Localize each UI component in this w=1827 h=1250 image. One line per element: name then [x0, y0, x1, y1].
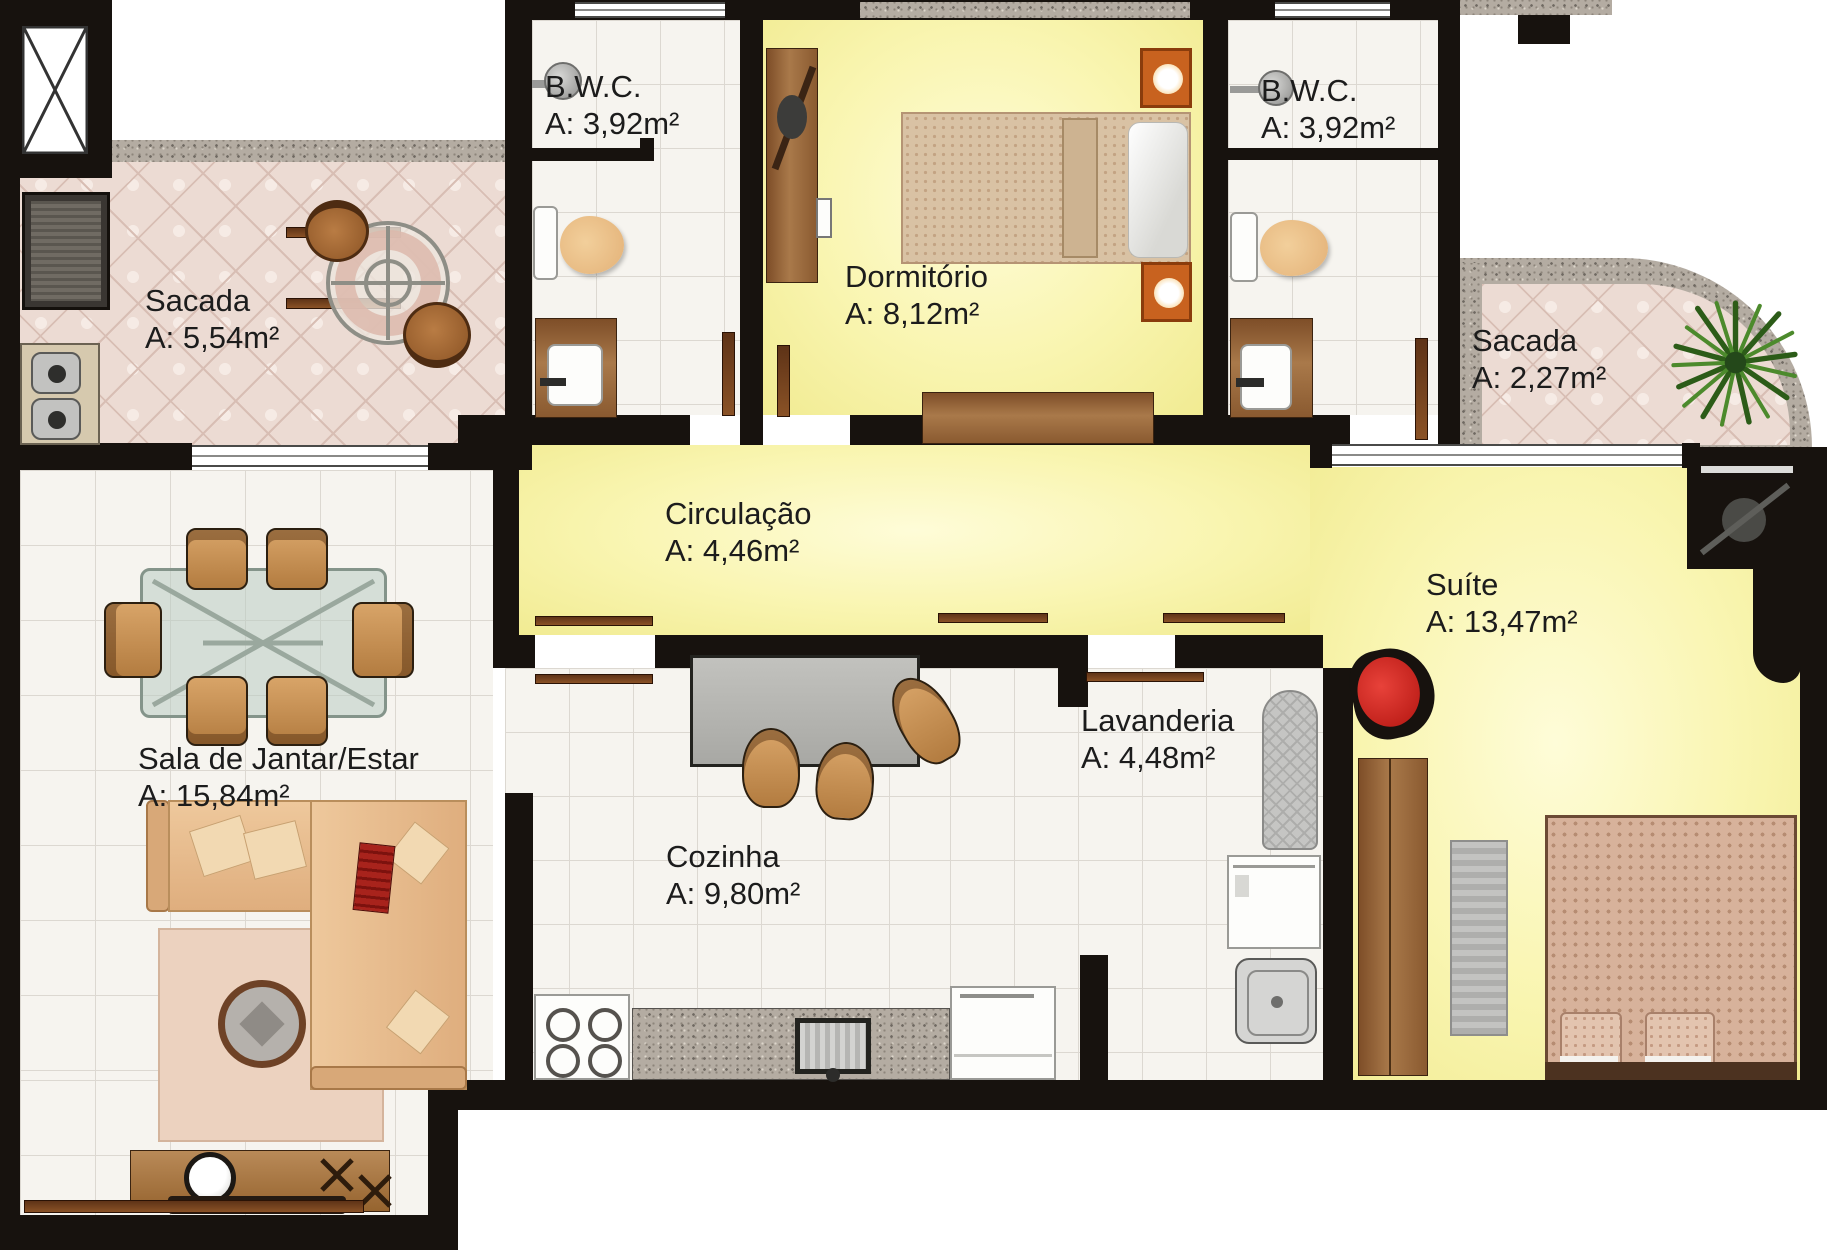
- wall-hall-bottom-c: [1175, 635, 1323, 668]
- room-name: Lavanderia: [1081, 702, 1234, 739]
- nightstand-lamp: [1140, 48, 1192, 108]
- room-label-dormitorio: Dormitório A: 8,12m²: [845, 258, 988, 332]
- rack-decor-x: [320, 1158, 354, 1192]
- wall-hall-bottom-a: [493, 635, 535, 668]
- barbecue-grill: [22, 192, 110, 310]
- room-name: Cozinha: [666, 838, 800, 875]
- suite-rug: [1450, 840, 1508, 1036]
- room-label-bwc-2: B.W.C. A: 3,92m²: [1261, 72, 1395, 146]
- washing-machine: [1227, 855, 1321, 949]
- living-balcony-window: [192, 445, 428, 467]
- bedroom-wardrobe: [766, 48, 818, 283]
- ironing-board: [1262, 690, 1318, 850]
- wall-laundry-stub: [1058, 635, 1088, 707]
- wall-balcony1-bottom-left: [0, 443, 192, 470]
- bedroom-pillow: [1128, 122, 1188, 258]
- floorplan-canvas: Sacada A: 5,54m² B.W.C. A: 3,92m² Dormit…: [0, 0, 1827, 1250]
- laundry-door-outer: [938, 613, 1048, 623]
- room-name: Suíte: [1426, 566, 1578, 603]
- room-label-sacada-2: Sacada A: 2,27m²: [1472, 322, 1606, 396]
- plant-icon: [1668, 295, 1803, 430]
- wall-living-left: [0, 470, 20, 1250]
- granite-top-right-strip: [1460, 0, 1612, 15]
- room-name: Circulação: [665, 495, 811, 532]
- shower-partition: [1228, 148, 1438, 160]
- room-area: A: 4,46m²: [665, 532, 811, 569]
- room-area: A: 13,47m²: [1426, 603, 1578, 640]
- wall-h-bwc2: [1228, 415, 1350, 445]
- kitchen-chair: [742, 728, 800, 808]
- wall-bottom-mid: [458, 1080, 1827, 1110]
- room-label-suite: Suíte A: 13,47m²: [1426, 566, 1578, 640]
- wall-suite-right: [1800, 569, 1827, 1110]
- room-area: A: 9,80m²: [666, 875, 800, 912]
- bwc2-window: [1275, 2, 1390, 18]
- elevator-shaft: [22, 26, 88, 154]
- balcony-sink-basin: [31, 352, 81, 394]
- stove: [534, 994, 630, 1080]
- room-area: A: 15,84m²: [138, 777, 419, 814]
- room-name: Sala de Jantar/Estar: [138, 740, 419, 777]
- bwc2-faucet: [1236, 378, 1264, 387]
- room-area: A: 3,92m²: [1261, 109, 1395, 146]
- toilet-tank: [1230, 212, 1258, 282]
- bwc1-window: [575, 2, 725, 18]
- fridge: [950, 986, 1056, 1080]
- balcony-sink-basin: [31, 398, 81, 440]
- wall-hall-left: [493, 445, 519, 635]
- room-name: B.W.C.: [545, 68, 679, 105]
- dining-chair: [352, 602, 414, 678]
- closet-shelf-line: [1701, 466, 1793, 473]
- wall-bwc2-right: [1438, 0, 1460, 445]
- suite-balcony-window: [1332, 444, 1682, 466]
- room-label-cozinha: Cozinha A: 9,80m²: [666, 838, 800, 912]
- wall-living-bottom: [0, 1215, 458, 1250]
- laundry-door-inner: [1086, 672, 1204, 682]
- dining-chair: [266, 528, 328, 590]
- suite-door: [1163, 613, 1285, 623]
- bedroom-door: [777, 345, 790, 417]
- nightstand-lamp: [1141, 262, 1192, 322]
- dining-table: [140, 568, 387, 718]
- room-area: A: 8,12m²: [845, 295, 988, 332]
- suite-closet-tongue: [1753, 569, 1801, 683]
- sofa-armrest: [146, 800, 170, 912]
- kitchen-table: [690, 655, 920, 767]
- suite-wardrobe: [1358, 758, 1428, 1076]
- dining-chair: [186, 676, 248, 746]
- room-area: A: 2,27m²: [1472, 359, 1606, 396]
- kitchen-counter: [632, 1008, 950, 1080]
- kitchen-door: [535, 674, 653, 684]
- wall-kitchen-laundry: [1080, 955, 1108, 1080]
- bwc1-faucet: [540, 378, 566, 386]
- kitchen-sink: [795, 1018, 871, 1074]
- room-area: A: 5,54m²: [145, 319, 279, 356]
- wall-top-right-stub: [1518, 14, 1570, 44]
- bwc2-sink: [1240, 344, 1292, 410]
- bedroom-shelf-items: [816, 198, 832, 238]
- balcony1-parapet: [112, 140, 505, 162]
- wall-bwc1-bedroom: [740, 0, 763, 445]
- suite-headboard: [1545, 1062, 1797, 1080]
- bedroom-dresser: [922, 392, 1154, 444]
- wall-kitchen-left: [505, 793, 533, 1080]
- laundry-tub: [1235, 958, 1317, 1044]
- wall-bedroom-bwc2: [1203, 0, 1228, 445]
- bedroom-window-sill: [860, 2, 1190, 18]
- shower-partition: [532, 148, 644, 161]
- room-label-sacada-1: Sacada A: 5,54m²: [145, 282, 279, 356]
- hallway-door: [535, 616, 653, 626]
- balcony-chair: [403, 302, 471, 368]
- sofa-armrest: [310, 1066, 467, 1090]
- room-name: Dormitório: [845, 258, 988, 295]
- toilet-tank: [533, 206, 558, 280]
- room-area: A: 3,92m²: [545, 105, 679, 142]
- room-name: B.W.C.: [1261, 72, 1395, 109]
- room-label-bwc-1: B.W.C. A: 3,92m²: [545, 68, 679, 142]
- room-name: Sacada: [1472, 322, 1606, 359]
- balcony-chair: [305, 200, 369, 262]
- bwc1-sink: [547, 344, 603, 406]
- dining-chair: [186, 528, 248, 590]
- wall-suite-window-left: [1310, 443, 1332, 468]
- wall-bwc1-left: [505, 0, 532, 470]
- room-label-lavanderia: Lavanderia A: 4,48m²: [1081, 702, 1234, 776]
- wall-h-stub: [740, 415, 763, 445]
- wall-balcony1-left: [0, 140, 20, 470]
- living-entry-door: [24, 1200, 364, 1213]
- room-area: A: 4,48m²: [1081, 739, 1234, 776]
- room-label-sala: Sala de Jantar/Estar A: 15,84m²: [138, 740, 419, 814]
- wall-h-bwc1: [458, 415, 690, 445]
- kitchen-faucet: [826, 1068, 840, 1082]
- sofa-red-pillow: [353, 842, 396, 913]
- dining-chair: [104, 602, 162, 678]
- bwc1-door: [722, 332, 735, 416]
- hallway-floor: [519, 445, 1310, 635]
- bedroom-bed-blanket: [1062, 118, 1098, 258]
- bwc2-door: [1415, 338, 1428, 440]
- dining-chair: [266, 676, 328, 746]
- room-label-circulacao: Circulação A: 4,46m²: [665, 495, 811, 569]
- wall-laundry-suite: [1323, 668, 1353, 1080]
- room-name: Sacada: [145, 282, 279, 319]
